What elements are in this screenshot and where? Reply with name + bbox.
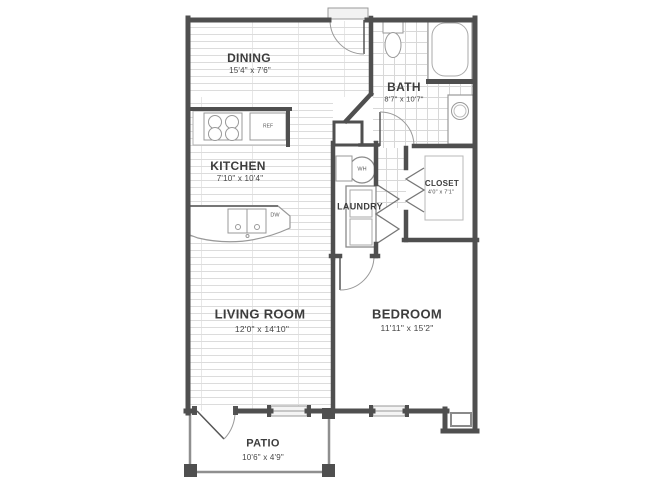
exterior-nook	[451, 413, 471, 426]
patio-dimensions: 10'6" x 4'9"	[242, 454, 284, 462]
bedroom-dimensions: 11'11" x 15'2"	[381, 324, 434, 333]
entry-door	[328, 8, 368, 54]
closet-dimensions: 4'0" x 7'1"	[428, 190, 454, 196]
closet-bifold-door-icon	[406, 168, 424, 212]
kitchen-dimensions: 7'10" x 10'4"	[217, 175, 263, 183]
laundry-shelf	[336, 156, 352, 181]
bath-door	[380, 112, 414, 146]
dishwasher-label: DW	[270, 213, 279, 219]
toilet-icon	[383, 22, 403, 58]
dining-label: DINING	[227, 52, 271, 64]
kitchen-label: KITCHEN	[210, 160, 265, 172]
living-room-label: LIVING ROOM	[215, 308, 306, 321]
patio-door	[192, 406, 238, 439]
floor-plan: DINING 15'4" x 7'6" BATH 8'7" x 10'7" KI…	[0, 0, 650, 488]
floorplan-linework	[0, 0, 650, 488]
living-room-dimensions: 12'0" x 14'10"	[235, 325, 289, 334]
laundry-bifold-door-icon	[376, 184, 399, 244]
laundry-label: LAUNDRY	[337, 203, 383, 212]
stove-icon	[204, 113, 242, 141]
bath-dimensions: 8'7" x 10'7"	[384, 95, 423, 103]
living-room-window	[267, 405, 311, 417]
bedroom-label: BEDROOM	[372, 308, 442, 321]
patio-label: PATIO	[246, 439, 279, 450]
dining-dimensions: 15'4" x 7'6"	[229, 67, 271, 75]
island-sink-icon	[228, 209, 266, 238]
refrigerator-label: REF	[263, 125, 273, 130]
bathtub-icon	[426, 19, 474, 84]
bedroom-door	[340, 256, 374, 290]
bath-sink-icon	[448, 95, 474, 144]
utility-niche	[334, 122, 362, 145]
closet-label: CLOSET	[425, 180, 459, 188]
washer-dryer-icon	[346, 186, 376, 247]
bath-label: BATH	[387, 81, 421, 93]
closet-shelf	[425, 156, 463, 220]
water-heater-label: WH	[357, 167, 366, 173]
